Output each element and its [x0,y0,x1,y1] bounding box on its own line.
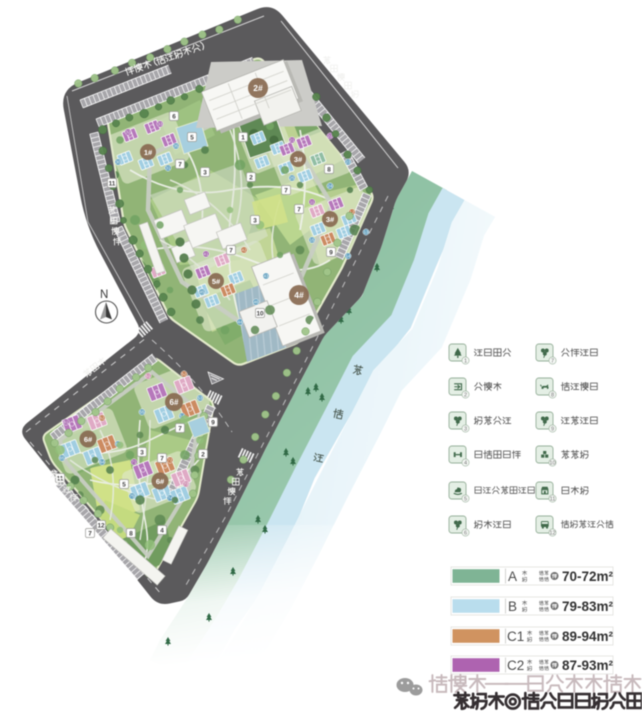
svg-text:43: 43 [264,274,269,279]
svg-text:6#: 6# [156,477,165,486]
svg-text:64: 64 [100,460,105,465]
svg-text:8: 8 [327,166,331,173]
svg-text:45: 45 [200,290,205,295]
svg-text:B: B [508,599,517,614]
svg-text:9: 9 [329,249,333,256]
svg-text:3: 3 [464,427,467,433]
svg-text:1: 1 [464,359,467,365]
svg-text:C1: C1 [507,629,524,644]
svg-text:72: 72 [168,458,173,463]
svg-text:A: A [508,569,517,584]
svg-text:3: 3 [253,217,257,224]
svg-text:2#: 2# [253,83,263,93]
svg-text:6#: 6# [84,435,93,444]
svg-text:32: 32 [126,130,131,135]
svg-text:4#: 4# [294,290,304,300]
svg-text:70-72m²: 70-72m² [562,569,614,584]
svg-text:7: 7 [178,161,182,168]
svg-text:11: 11 [550,497,556,503]
svg-text:11: 11 [109,180,116,187]
svg-text:7: 7 [178,425,182,432]
svg-text:9: 9 [551,427,554,433]
svg-text:4: 4 [160,527,164,534]
svg-text:61: 61 [64,420,69,425]
svg-text:51: 51 [146,374,151,379]
svg-text:8: 8 [551,393,554,399]
svg-text:14: 14 [346,254,351,259]
svg-text:79-83m²: 79-83m² [562,599,614,614]
svg-text:3#: 3# [326,215,335,224]
svg-text:65: 65 [60,456,65,461]
svg-text:6#: 6# [170,398,179,407]
svg-text:73: 73 [184,482,189,487]
svg-text:2: 2 [201,451,205,458]
svg-text:3: 3 [203,169,207,176]
svg-text:13: 13 [364,230,369,235]
svg-text:7: 7 [297,206,301,213]
svg-text:1#: 1# [144,148,153,157]
svg-text:12: 12 [97,522,105,529]
svg-text:24: 24 [328,184,333,189]
svg-text:11: 11 [310,200,315,205]
svg-text:55: 55 [140,410,145,415]
svg-text:1: 1 [241,134,245,141]
svg-text:23: 23 [346,160,351,165]
svg-text:7: 7 [88,530,92,537]
svg-text:5#: 5# [212,277,221,286]
svg-text:12: 12 [549,531,555,537]
svg-text:75: 75 [130,494,135,499]
svg-text:C2: C2 [507,658,524,673]
svg-text:53: 53 [198,396,203,401]
svg-text:10: 10 [256,310,264,317]
svg-text:8: 8 [129,530,133,537]
svg-text:46: 46 [254,300,259,305]
svg-text:30: 30 [116,160,121,165]
svg-text:87-93m²: 87-93m² [562,658,614,673]
svg-text:62: 62 [100,416,105,421]
svg-text:42: 42 [242,248,247,253]
svg-text:5: 5 [122,481,126,488]
svg-text:89-94m²: 89-94m² [562,629,614,644]
svg-text:71: 71 [132,460,137,465]
svg-text:31: 31 [166,166,171,171]
svg-text:15: 15 [310,238,315,243]
svg-text:5: 5 [464,497,467,503]
svg-text:6: 6 [464,531,467,537]
svg-text:7: 7 [160,455,164,462]
svg-text:3: 3 [140,449,144,456]
svg-text:2: 2 [464,393,467,399]
svg-text:4: 4 [464,461,467,467]
svg-text:7: 7 [284,187,288,194]
svg-text:10: 10 [549,461,555,467]
svg-text:7: 7 [229,247,233,254]
svg-text:N: N [100,289,108,301]
svg-text:41: 41 [204,252,209,257]
svg-text:3#: 3# [294,155,303,164]
svg-text:33: 33 [158,122,163,127]
svg-text:44: 44 [238,320,243,325]
svg-text:7: 7 [551,359,554,365]
svg-text:35: 35 [174,144,179,149]
svg-text:9: 9 [211,419,215,426]
svg-text:25: 25 [290,176,295,181]
svg-text:5: 5 [190,134,194,141]
svg-text:2: 2 [249,174,253,181]
svg-text:21: 21 [290,138,295,143]
svg-text:52: 52 [182,372,187,377]
svg-text:6: 6 [172,113,176,120]
